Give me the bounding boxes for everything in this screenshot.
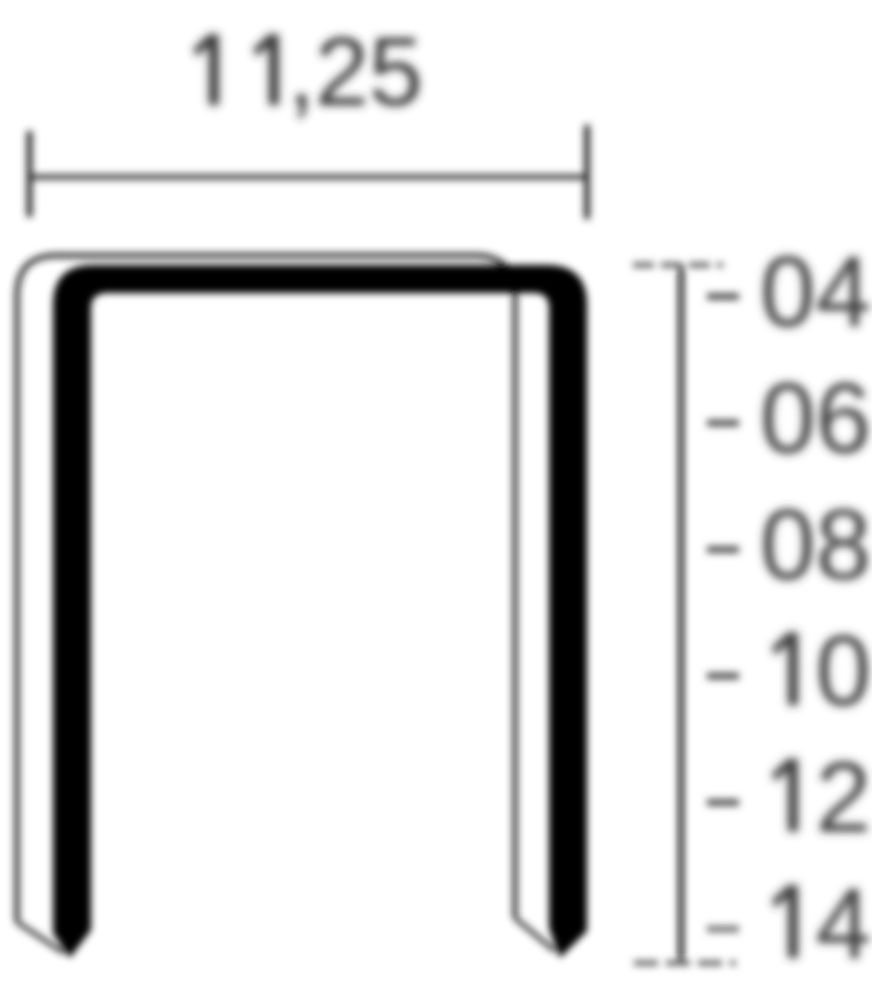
svg-text:06: 06 (760, 362, 871, 474)
svg-text:04: 04 (760, 236, 871, 348)
svg-text:0: 0 (816, 615, 872, 727)
svg-text:4: 4 (816, 868, 872, 980)
svg-text:08: 08 (760, 489, 871, 601)
svg-text:2: 2 (816, 742, 872, 854)
svg-text:,25: ,25 (288, 17, 423, 126)
